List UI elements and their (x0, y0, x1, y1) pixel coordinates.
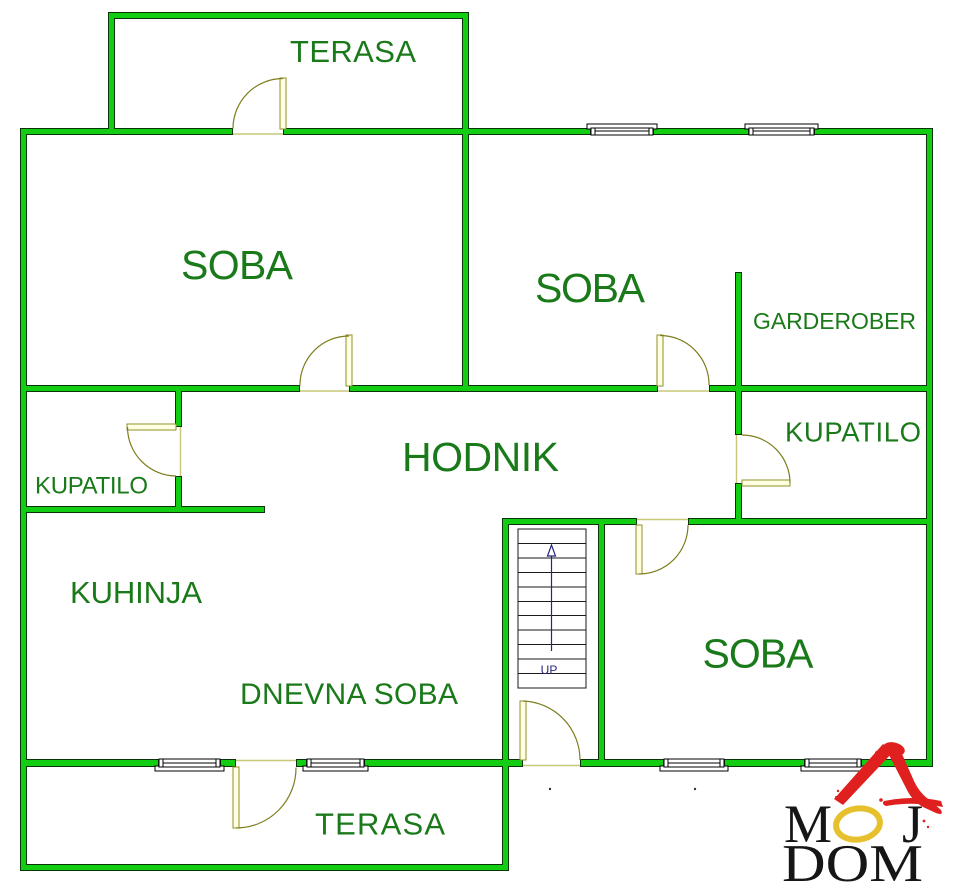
svg-text:DOM: DOM (782, 835, 923, 893)
svg-text:DNEVNA SOBA: DNEVNA SOBA (240, 678, 458, 711)
svg-text:KUPATILO: KUPATILO (785, 417, 921, 448)
svg-text:UP: UP (541, 663, 558, 677)
svg-text:HODNIK: HODNIK (402, 434, 559, 480)
svg-text:TERASA: TERASA (315, 807, 445, 842)
svg-text:GARDEROBER: GARDEROBER (753, 308, 916, 334)
svg-text:TERASA: TERASA (290, 34, 416, 69)
svg-text:SOBA: SOBA (703, 631, 815, 677)
svg-text:SOBA: SOBA (181, 242, 294, 288)
svg-text:KUPATILO: KUPATILO (35, 473, 148, 500)
svg-text:SOBA: SOBA (535, 265, 646, 311)
svg-text:KUHINJA: KUHINJA (70, 575, 202, 610)
